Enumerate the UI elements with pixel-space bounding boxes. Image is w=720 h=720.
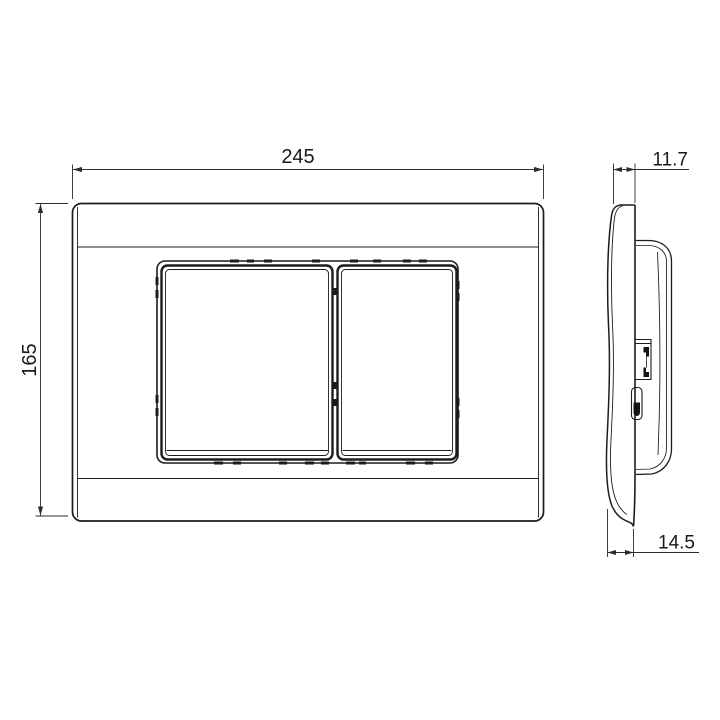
dimension-width: 245: [73, 146, 544, 199]
dimension-width-label: 245: [281, 146, 314, 168]
dimension-depth-top-label: 11.7: [652, 150, 688, 171]
side-plate-profile: [607, 205, 635, 527]
dimension-height-label: 165: [19, 343, 41, 376]
latch-hook-bottom: [644, 368, 650, 378]
front-view: [73, 204, 544, 522]
side-profile-view: [607, 205, 672, 527]
spring-clip-pad: [634, 403, 641, 417]
side-plate-inner-face-line: [611, 206, 627, 515]
flush-button-large-outline: [162, 266, 333, 460]
flush-button-small-outline: [338, 266, 457, 460]
housing-back-curve: [658, 252, 660, 455]
dimension-depth-bottom-label: 14.5: [658, 533, 695, 554]
dimension-depth-top: 11.7: [614, 150, 690, 205]
latch-mechanism: [636, 340, 652, 380]
technical-drawing: 245 165 11.7 14.5: [0, 0, 720, 720]
dimension-depth-bottom: 14.5: [608, 509, 700, 557]
drawing-canvas: 245 165 11.7 14.5: [0, 0, 720, 720]
flush-button-large: [162, 266, 333, 460]
side-plate-back-edge: [634, 205, 636, 527]
flush-button-small: [338, 266, 457, 460]
dimension-height: 165: [19, 204, 68, 517]
spring-clip: [632, 388, 643, 420]
dimension-depth-bottom-extension-lines: [608, 509, 634, 557]
latch-hook-top: [644, 347, 650, 357]
